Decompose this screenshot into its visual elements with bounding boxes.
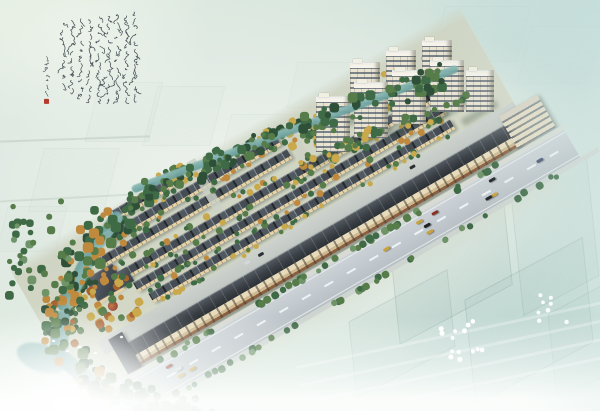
river-water [151, 401, 218, 411]
boat [120, 336, 123, 338]
calligraphy-inscription [38, 4, 144, 104]
river-water [55, 256, 95, 314]
calligraphy-strokes [38, 4, 144, 104]
boat [66, 350, 69, 352]
calligraphy-column [86, 20, 95, 103]
calligraphy-column [111, 14, 123, 104]
seal-stamp [44, 99, 49, 104]
calligraphy-column [76, 19, 85, 99]
calligraphy-column [96, 17, 105, 104]
river-water [81, 209, 125, 264]
calligraphy-column [43, 57, 50, 97]
canal-water [131, 64, 460, 193]
boat [78, 346, 81, 348]
mist-speckles-2 [0, 0, 2, 2]
aerial-rendering-scene [0, 0, 600, 411]
river-water [98, 382, 155, 411]
calligraphy-column [67, 20, 75, 94]
boat [94, 352, 97, 354]
boat [52, 340, 55, 342]
calligraphy-column [129, 12, 141, 102]
calligraphy-column [58, 23, 68, 90]
calligraphy-column [122, 16, 129, 104]
